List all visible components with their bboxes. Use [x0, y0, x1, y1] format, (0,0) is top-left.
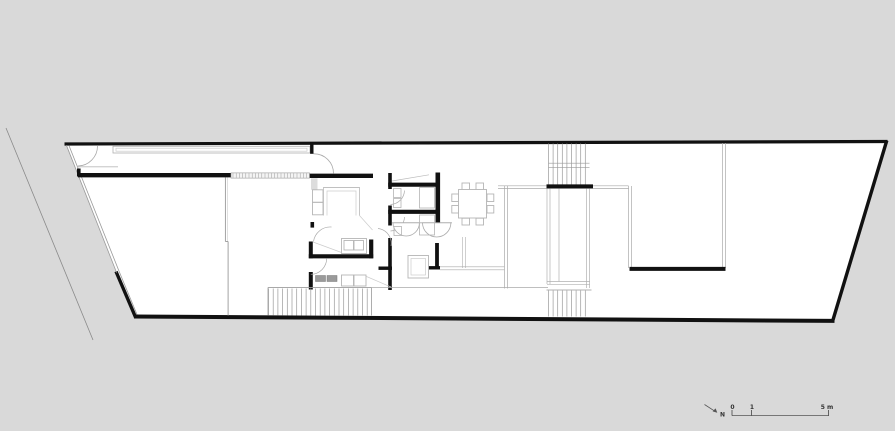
dining-chair	[476, 218, 484, 225]
dining-chair	[487, 206, 494, 214]
dining-chair	[452, 206, 459, 214]
scale-label-0: 0	[730, 404, 734, 411]
floor-plan-sheet: N 0 1 5 m	[0, 0, 895, 431]
scale-label-5m: 5 m	[821, 404, 834, 411]
wall-stub	[311, 222, 315, 228]
wall-shelf	[311, 178, 318, 190]
dining-table	[459, 190, 487, 219]
dining-chair	[487, 194, 494, 202]
building-floor	[66, 142, 887, 322]
floor-plan-drawing: N 0 1 5 m	[0, 0, 895, 431]
north-label: N	[720, 412, 725, 419]
scale-label-1: 1	[750, 404, 754, 411]
dining-chair	[462, 218, 470, 225]
dining-chair	[462, 183, 470, 190]
dining-chair	[452, 194, 459, 202]
dining-chair	[476, 183, 484, 190]
louver-screen	[231, 173, 310, 178]
